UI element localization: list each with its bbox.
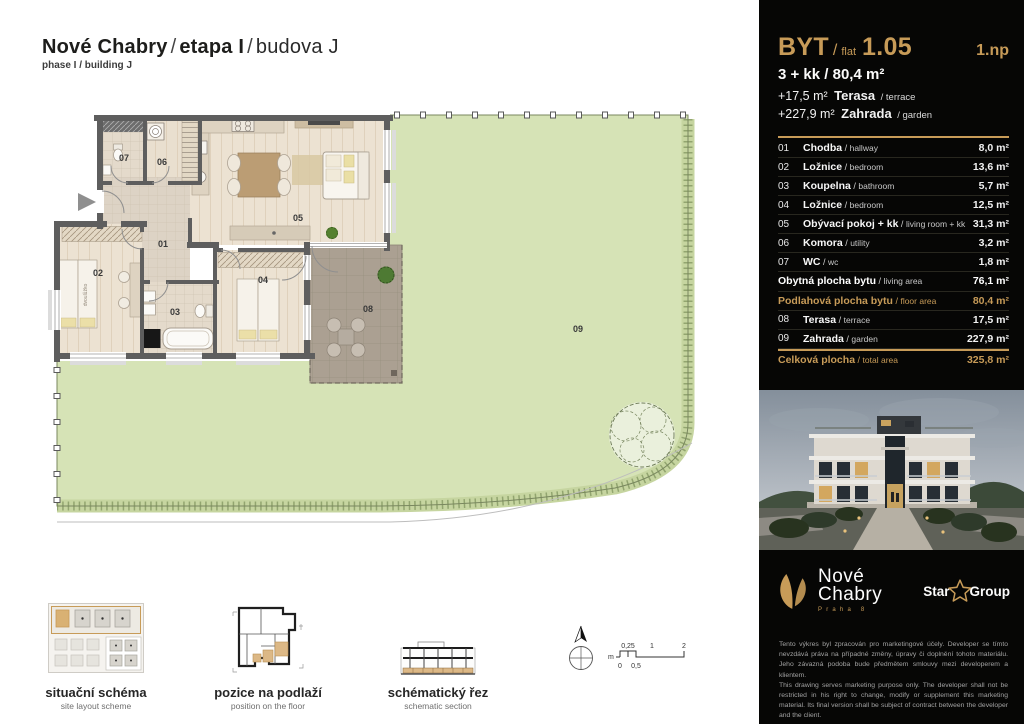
flat-label: BYT [778, 33, 829, 62]
room-label-07: 07 [119, 153, 129, 163]
room-label-04: 04 [258, 275, 268, 285]
legend-caption-cz: pozice na podlaží [198, 685, 338, 700]
table-row: 03Koupelna / bathroom5,7 m² [778, 177, 1009, 196]
room-label-05: 05 [293, 213, 303, 223]
legal-text: Tento výkres byl zpracován pro marketing… [779, 640, 1008, 724]
schematic-section-icon [400, 640, 476, 676]
site-layout-icon [48, 600, 144, 676]
layout-area: 3 + kk / 80,4 m² [778, 66, 1009, 83]
bed-label: dvoulůžko [82, 284, 89, 307]
entrance-arrow [78, 193, 96, 211]
info-panel: BYT / flat 1.05 1.np 3 + kk / 80,4 m² +1… [759, 0, 1024, 724]
flat-number: 1.05 [862, 33, 912, 62]
kitchen-island [230, 226, 310, 240]
rug [292, 155, 326, 185]
legend-caption-en: schematic section [368, 701, 508, 711]
legend-caption-en: position on the floor [198, 701, 338, 711]
legend-section: schématický řez schematic section [368, 596, 508, 711]
garden-spec: +227,9 m² Zahrada / garden [778, 106, 1009, 121]
logo-row: Nové Chabry Praha 8 Star Group [759, 552, 1024, 630]
leaf-icon [777, 568, 811, 614]
building-photo [759, 390, 1024, 550]
table-row: Obytná plocha bytu / living area76,1 m² [778, 272, 1009, 291]
page-subtitle: phase I / building J [42, 60, 339, 71]
star-group-logo: Star Group [923, 578, 1010, 604]
floor-position-icon [231, 604, 305, 676]
nove-chabry-logo: Nové Chabry Praha 8 [777, 568, 882, 614]
floor-plan-svg: 01 02 03 04 05 06 07 08 09 dvoulůžko [40, 105, 710, 550]
svg-text:0: 0 [618, 663, 622, 670]
flat-header: BYT / flat 1.05 1.np [778, 33, 1009, 62]
table-row: 05Obývací pokoj + kk / living room + kk3… [778, 215, 1009, 234]
svg-text:0,5: 0,5 [631, 663, 641, 670]
room-table: 01Chodba / hallway8,0 m²02Ložnice / bedr… [778, 139, 1009, 369]
room-label-08: 08 [363, 304, 373, 314]
floor-plan: 01 02 03 04 05 06 07 08 09 dvoulůžko [40, 105, 710, 550]
room-label-09: 09 [573, 324, 583, 334]
stove [232, 120, 254, 132]
scale-bar-icon: m 0,25 1 2 0 0,5 [606, 640, 692, 670]
legend-caption-cz: schématický řez [368, 685, 508, 700]
flat-word: flat [841, 46, 856, 58]
legend-caption-en: site layout scheme [26, 701, 166, 711]
room-label-06: 06 [157, 157, 167, 167]
table-row: Podlahová plocha bytu / floor area80,4 m… [778, 292, 1009, 311]
table-row: 02Ložnice / bedroom13,6 m² [778, 158, 1009, 177]
table-row: 04Ložnice / bedroom12,5 m² [778, 196, 1009, 215]
room-label-01: 01 [158, 239, 168, 249]
terrace-area [310, 245, 402, 383]
table-row: 06Komora / utility3,2 m² [778, 234, 1009, 253]
building-name: budova J [256, 36, 339, 58]
legend-caption-cz: situační schéma [26, 685, 166, 700]
scale-unit: m [608, 654, 614, 661]
legend-floor-position: pozice na podlaží position on the floor [198, 596, 338, 711]
gold-divider [778, 136, 1009, 138]
svg-text:2: 2 [682, 643, 686, 650]
toilet [195, 305, 205, 318]
svg-text:1: 1 [650, 643, 654, 650]
terrace-spec: +17,5 m² Terasa / terrace [778, 88, 1009, 103]
floor-number: 1.np [976, 42, 1009, 60]
brochure-page: Nové Chabry/etapa I/budova J phase I / b… [0, 0, 1024, 724]
dining-table [238, 153, 280, 197]
page-title: Nové Chabry/etapa I/budova J phase I / b… [42, 36, 339, 71]
table-row: Celková plocha / total area325,8 m² [778, 349, 1009, 369]
table-row: 08Terasa / terrace17,5 m² [778, 311, 1009, 330]
table-row: 07WC / wc1,8 m² [778, 253, 1009, 272]
table-row: 09Zahrada / garden227,9 m² [778, 330, 1009, 349]
scale-bar: m 0,25 1 2 0 0,5 [606, 640, 692, 675]
table-row: 01Chodba / hallway8,0 m² [778, 139, 1009, 158]
washing-machine [144, 329, 161, 348]
phase-name: etapa I [179, 36, 244, 58]
compass-icon [566, 624, 596, 674]
north-compass [566, 624, 596, 679]
room-label-03: 03 [170, 307, 180, 317]
project-name: Nové Chabry [42, 36, 168, 58]
garden-tree [609, 402, 675, 468]
svg-text:0,25: 0,25 [621, 643, 635, 650]
room-label-02: 02 [93, 268, 103, 278]
legend-site-layout: situační schéma site layout scheme [26, 596, 166, 711]
flat-specs: 3 + kk / 80,4 m² +17,5 m² Terasa / terra… [778, 66, 1009, 124]
